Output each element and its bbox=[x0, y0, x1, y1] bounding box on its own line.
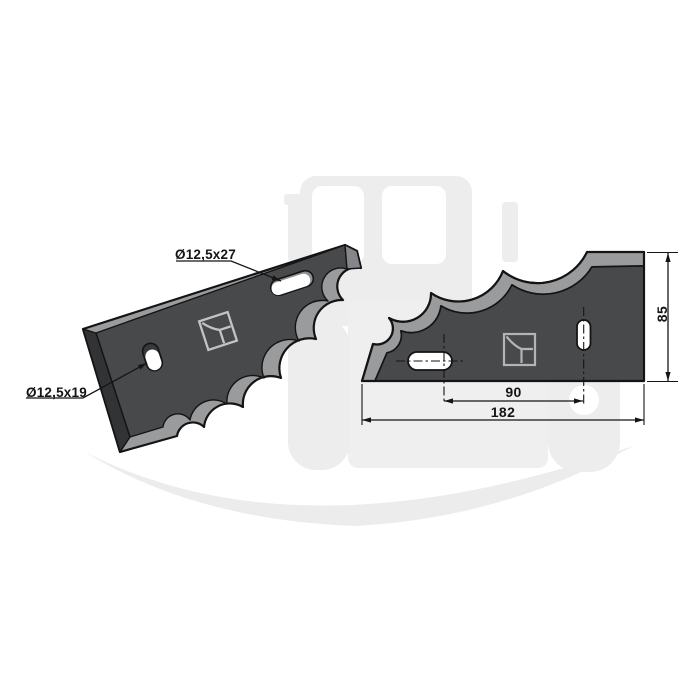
dimension-label-182: 182 bbox=[362, 404, 644, 420]
hole-callout-12-5x19: Ø12,5x19 bbox=[26, 385, 87, 400]
hole-callout-12-5x27: Ø12,5x27 bbox=[175, 247, 236, 262]
dimension-label-90: 90 bbox=[444, 384, 583, 400]
product-technical-drawing: Ø12,5x27 Ø12,5x19 90 182 85 bbox=[0, 0, 700, 700]
drawing-canvas bbox=[0, 0, 700, 700]
dimension-label-85: 85 bbox=[654, 293, 670, 335]
